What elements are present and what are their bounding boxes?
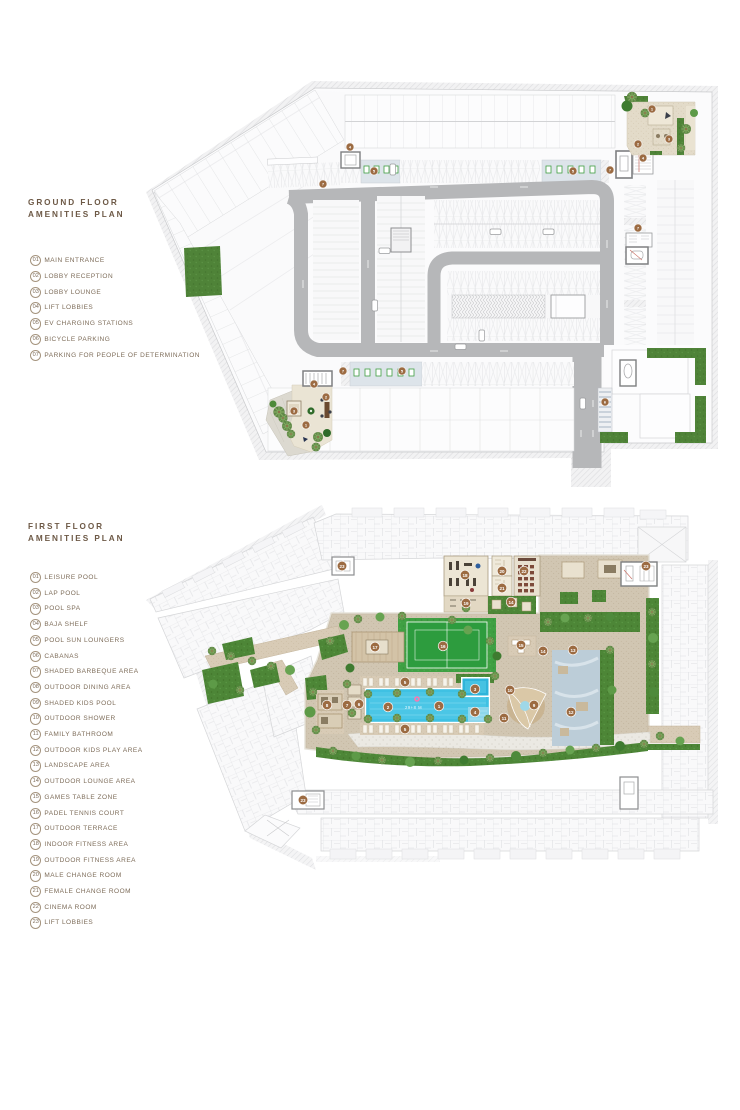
svg-text:18: 18 xyxy=(462,573,468,578)
svg-text:4: 4 xyxy=(474,710,477,715)
svg-text:19: 19 xyxy=(463,601,469,606)
svg-text:5: 5 xyxy=(404,727,407,732)
svg-text:14: 14 xyxy=(540,649,546,654)
svg-text:17: 17 xyxy=(372,645,378,650)
svg-text:23: 23 xyxy=(300,798,306,803)
svg-text:29+8 M: 29+8 M xyxy=(405,705,422,710)
svg-text:3: 3 xyxy=(474,687,477,692)
svg-text:6: 6 xyxy=(358,702,361,707)
svg-text:14: 14 xyxy=(508,600,514,605)
svg-text:7: 7 xyxy=(346,703,349,708)
svg-text:23: 23 xyxy=(339,564,345,569)
svg-text:10: 10 xyxy=(507,688,513,693)
svg-text:13: 13 xyxy=(570,648,576,653)
svg-text:22: 22 xyxy=(521,569,527,574)
svg-text:21: 21 xyxy=(499,586,505,591)
svg-text:5: 5 xyxy=(404,680,407,685)
svg-text:9: 9 xyxy=(533,703,536,708)
svg-text:12: 12 xyxy=(568,710,574,715)
svg-text:8: 8 xyxy=(326,703,329,708)
svg-text:1: 1 xyxy=(438,704,441,709)
svg-text:11: 11 xyxy=(502,716,507,721)
svg-text:23: 23 xyxy=(643,564,649,569)
svg-text:20: 20 xyxy=(499,569,505,574)
svg-text:16: 16 xyxy=(440,644,446,649)
svg-text:15: 15 xyxy=(518,643,524,648)
svg-text:2: 2 xyxy=(387,705,390,710)
